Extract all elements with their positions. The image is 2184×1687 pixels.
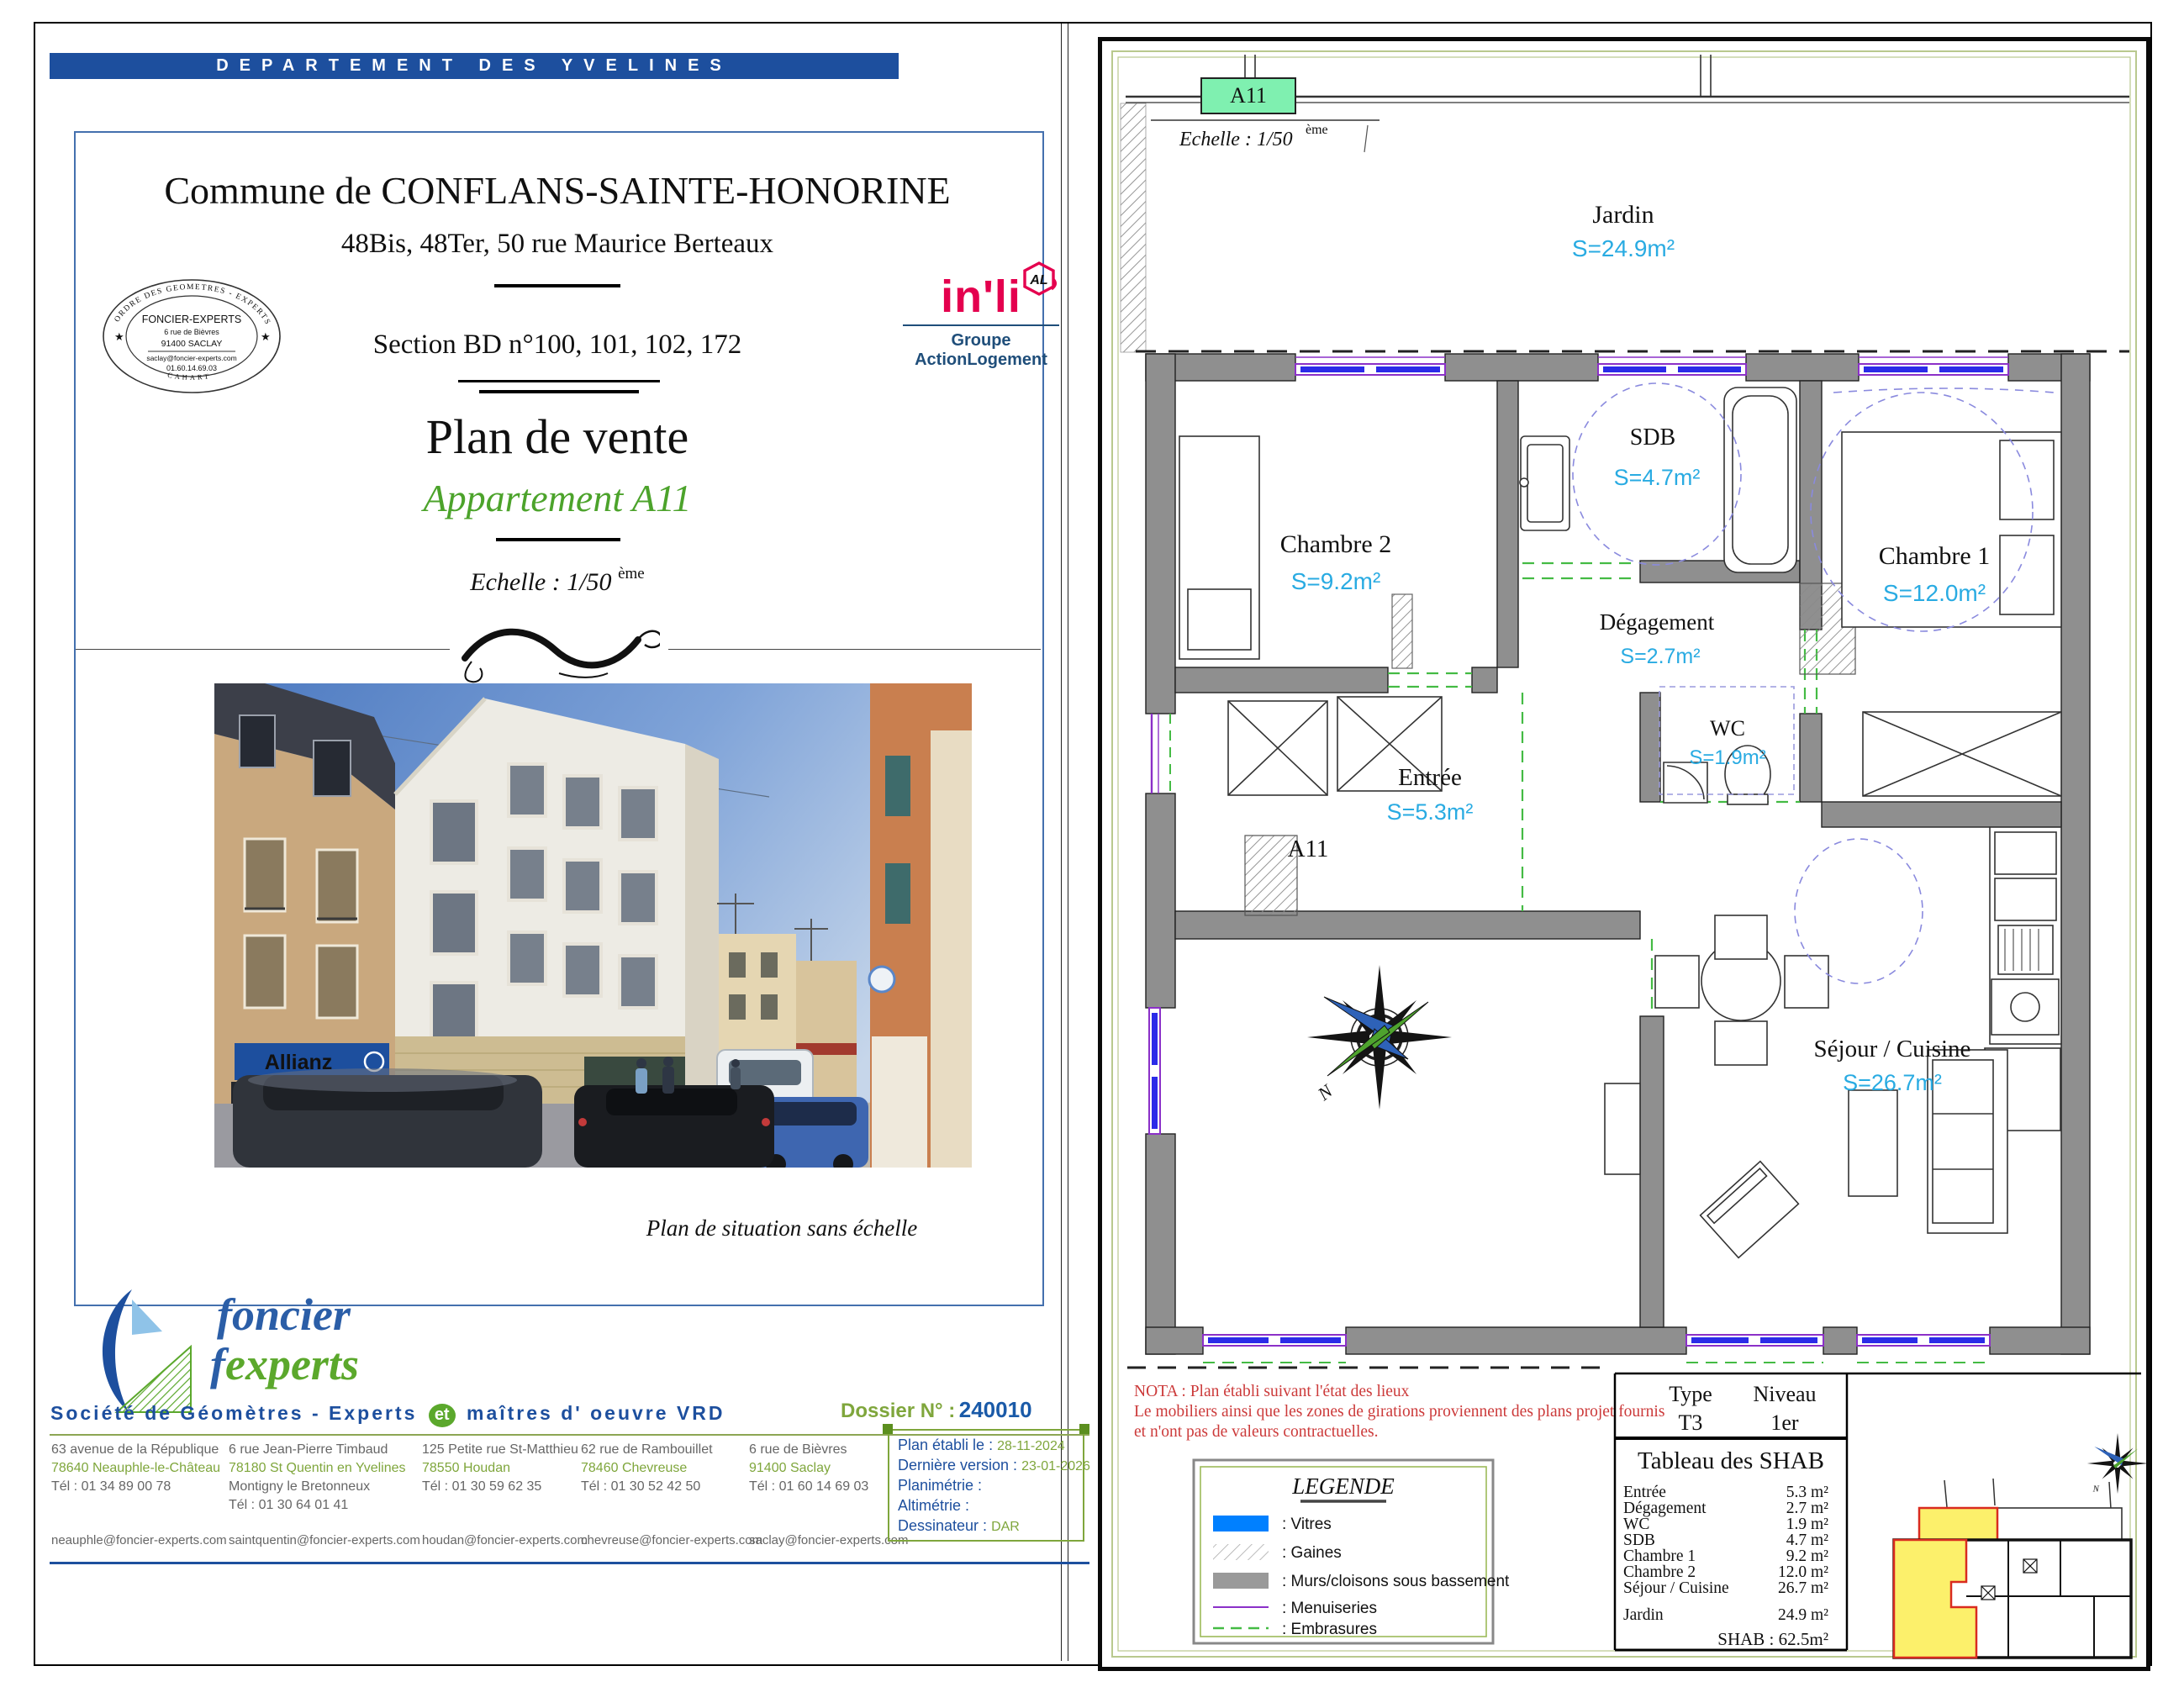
plan-scale-sup: ème	[1306, 123, 1328, 137]
agency-line: 78180 St Quentin en Yvelines	[229, 1459, 418, 1478]
dossier-field-value: 28-11-2024	[997, 1439, 1065, 1453]
legend-swatch-vitres	[1213, 1516, 1269, 1531]
photo-caption: Plan de situation sans échelle	[546, 1215, 1017, 1242]
stamp-addr1: 6 rue de Bièvres	[164, 328, 219, 336]
level-label: Niveau	[1753, 1382, 1816, 1406]
window-bottom-sejour-1	[1686, 1335, 1823, 1363]
experts-text: experts	[225, 1339, 359, 1389]
legend-box: LEGENDE : Vitres : Gaines : Murs/cloison…	[1194, 1460, 1510, 1643]
dossier-field-label: Dernière version :	[898, 1457, 1017, 1473]
room-area-sdb: S=4.7m²	[1614, 465, 1701, 490]
dossier-box: Plan établi le : 28-11-2024 Dernière ver…	[888, 1429, 1084, 1542]
window-top-sdb	[1598, 357, 1746, 375]
stamp-email: saclay@foncier-experts.com	[146, 354, 236, 362]
sdb-sink-basin	[1527, 445, 1563, 522]
key-plan: N	[1894, 1433, 2146, 1658]
shab-room: Chambre 2	[1623, 1563, 1696, 1581]
agency-line: Tél : 01 30 64 01 41	[229, 1496, 418, 1515]
dossier-heading: Dossier N° : 240010	[841, 1397, 1089, 1423]
pillow-chambre2	[1188, 589, 1251, 650]
legend-swatch-murs	[1213, 1573, 1269, 1589]
sdb-faucet	[1520, 478, 1528, 487]
shab-title: Tableau des SHAB	[1638, 1447, 1824, 1474]
inli-al-text: AL	[1029, 273, 1047, 287]
nota-text: NOTA : Plan établi suivant l'état des li…	[1134, 1383, 1664, 1441]
room-area-wc: S=1.9m²	[1689, 746, 1765, 769]
dossier-field-value: DAR	[991, 1520, 1020, 1534]
shab-room: Entrée	[1623, 1484, 1666, 1501]
company-tagline: Société de Géomètres - Experts et maître…	[50, 1402, 904, 1427]
dossier-corner-square	[883, 1424, 893, 1434]
divider-rule-3	[496, 538, 620, 541]
plan-de-vente-page: DEPARTEMENT DES YVELINES Commune de CONF…	[0, 0, 2184, 1687]
shab-area: 5.3 m²	[1786, 1484, 1828, 1501]
shab-area: 4.7 m²	[1786, 1531, 1828, 1549]
window-top-chambre1	[1859, 357, 2008, 375]
department-banner: DEPARTEMENT DES YVELINES	[50, 53, 899, 79]
scale-note: Echelle : 1/50 ème	[74, 565, 1041, 597]
room-label-chambre2: Chambre 2	[1280, 530, 1391, 558]
agency-stquentin: 6 rue Jean-Pierre Timbaud 78180 St Quent…	[229, 1441, 418, 1515]
dossier-field-label: Altimétrie :	[898, 1497, 969, 1514]
inli-group-label: Groupe ActionLogement	[893, 331, 1069, 370]
street-address: 48Bis, 48Ter, 50 rue Maurice Berteaux	[74, 229, 1041, 260]
shab-area: 12.0 m²	[1778, 1563, 1828, 1581]
shab-total: SHAB : 62.5m²	[1717, 1629, 1828, 1649]
agency-line: Tél : 01 30 52 42 50	[581, 1478, 770, 1496]
legend-label-vitres: : Vitres	[1282, 1516, 1332, 1533]
inli-brand: in'li	[941, 272, 1021, 322]
legend-title: LEGENDE	[1291, 1473, 1395, 1499]
kitchen-sink	[1998, 925, 2053, 974]
legend-label-gaines: : Gaines	[1282, 1544, 1342, 1562]
shab-room: Chambre 1	[1623, 1547, 1696, 1565]
surveyor-stamp: ORDRE DES GEOMETRES - EXPERTS CAHART ★ ★…	[99, 276, 284, 397]
dossier-field-label: Planimétrie :	[898, 1477, 982, 1494]
dossier-field-value: 23-01-2026	[1021, 1459, 1090, 1473]
dossier-field-label: Plan établi le :	[898, 1437, 993, 1453]
dossier-field-label: Dessinateur :	[898, 1517, 987, 1534]
nota-line-2: Le mobiliers ainsi que les zones de gira…	[1134, 1403, 1664, 1421]
inli-al-hexagon-icon: AL	[1020, 261, 1058, 299]
stamp-star-right: ★	[261, 330, 271, 343]
floor-plan-drawing: A11 Echelle : 1/50 ème Jardin S=24.9m²	[1102, 41, 2146, 1667]
room-label-entree: Entrée	[1398, 764, 1462, 791]
level-value: 1er	[1770, 1410, 1799, 1435]
agency-email: chevreuse@foncier-experts.com	[581, 1533, 762, 1547]
scale-sup: ème	[618, 565, 645, 583]
entrance-door-left	[1152, 714, 1170, 793]
scale-label: Echelle : 1/50	[470, 568, 611, 596]
room-area-chambre1: S=12.0m²	[1883, 580, 1986, 606]
window-left-wall	[1149, 1008, 1160, 1134]
room-label-sdb: SDB	[1630, 424, 1675, 451]
plan-title: Plan de vente	[74, 409, 1041, 465]
room-label-sejour: Séjour / Cuisine	[1814, 1036, 1971, 1062]
agency-chevreuse: 62 rue de Rambouillet 78460 Chevreuse Té…	[581, 1441, 770, 1515]
agency-email: saclay@foncier-experts.com	[749, 1533, 908, 1547]
agency-neauphle: 63 avenue de la République 78640 Neauphl…	[51, 1441, 240, 1515]
room-label-chambre1: Chambre 1	[1879, 542, 1990, 570]
ornament-line-left	[76, 649, 450, 650]
experts-wordmark: fexperts	[210, 1338, 359, 1390]
commune-title: Commune de CONFLANS-SAINTE-HONORINE	[74, 168, 1041, 213]
dossier-label: Dossier N° :	[841, 1400, 955, 1422]
agency-line: Tél : 01 34 89 00 78	[51, 1478, 240, 1496]
room-area-sejour: S=26.7m²	[1843, 1070, 1942, 1095]
window-bottom-left	[1203, 1335, 1346, 1363]
stamp-addr2: 91400 SACLAY	[161, 339, 223, 349]
room-area-degagement: S=2.7m²	[1620, 645, 1700, 668]
shab-area: 24.9 m²	[1778, 1606, 1828, 1624]
key-plan-compass-icon: N	[2087, 1433, 2146, 1495]
dossier-corner-square	[1079, 1424, 1089, 1434]
shab-area: 9.2 m²	[1786, 1547, 1828, 1565]
apartment-title: Appartement A11	[74, 476, 1041, 520]
agency-line: 78460 Chevreuse	[581, 1459, 770, 1478]
room-label-degagement: Dégagement	[1600, 609, 1715, 635]
inli-divider	[903, 324, 1059, 326]
divider-rule-1	[494, 284, 620, 287]
nightstand-1	[2000, 440, 2054, 519]
window-top-chambre2	[1295, 357, 1445, 375]
ornament-line-right	[668, 649, 1041, 650]
foncier-experts-logo-icon	[80, 1288, 210, 1415]
agency-email: neauphle@foncier-experts.com	[51, 1533, 227, 1547]
stamp-star-left: ★	[114, 330, 124, 343]
shab-area: 1.9 m²	[1786, 1516, 1828, 1533]
experts-f: f	[210, 1339, 225, 1389]
type-value: T3	[1679, 1410, 1703, 1435]
shab-room: WC	[1623, 1516, 1649, 1533]
shab-room: Dégagement	[1623, 1500, 1707, 1517]
stamp-name: FONCIER-EXPERTS	[142, 314, 242, 325]
dossier-number: 240010	[959, 1397, 1032, 1422]
plan-scale-label: Echelle : 1/50	[1179, 129, 1293, 150]
window-bottom-sejour-2	[1857, 1335, 1990, 1363]
room-area-chambre2: S=9.2m²	[1291, 568, 1381, 594]
swirl-ornament	[458, 618, 660, 685]
nota-line-3: et n'ont pas de valeurs contractuelles.	[1134, 1423, 1379, 1441]
agency-line: Montigny le Bretonneux	[229, 1478, 418, 1496]
compass-rose-icon: N	[1307, 965, 1452, 1110]
door-leaf-chambre2	[1392, 594, 1412, 668]
agency-line: 6 rue Jean-Pierre Timbaud	[229, 1441, 418, 1459]
floor-plan-panel: A11 Echelle : 1/50 ème Jardin S=24.9m²	[1098, 37, 2150, 1671]
coffee-table	[1849, 1090, 1897, 1196]
agency-line: 63 avenue de la République	[51, 1441, 240, 1459]
unit-badge-label: A11	[1230, 83, 1267, 108]
room-area-entree: S=5.3m²	[1387, 799, 1474, 825]
foncier-wordmark: foncier	[217, 1289, 351, 1341]
tagline-right: maîtres d' oeuvre VRD	[467, 1402, 725, 1424]
nota-line-1: NOTA : Plan établi suivant l'état des li…	[1134, 1383, 1410, 1400]
unit-label-on-plan: A11	[1288, 836, 1329, 862]
agency-line: 62 rue de Rambouillet	[581, 1441, 770, 1459]
desk-adjacent-unit	[1605, 1083, 1640, 1174]
tv-stand	[1701, 1162, 1799, 1258]
tagline-left: Société de Géomètres - Experts	[50, 1402, 417, 1424]
shab-room: Séjour / Cuisine	[1623, 1579, 1729, 1597]
type-label: Type	[1669, 1382, 1712, 1406]
room-label-wc: WC	[1710, 716, 1745, 741]
inli-logo: in'li AL Groupe ActionLogement	[893, 271, 1069, 370]
legend-label-embrasures: : Embrasures	[1282, 1621, 1377, 1638]
divider-rule-2a	[458, 380, 660, 382]
compass-north-label: N	[1313, 1079, 1337, 1104]
tagline-et-badge: et	[429, 1404, 456, 1427]
dining-set	[1655, 915, 1828, 1065]
room-label-jardin: Jardin	[1592, 201, 1654, 229]
key-plan-north: N	[2092, 1484, 2100, 1495]
agency-email: houdan@foncier-experts.com	[422, 1533, 588, 1547]
situation-photo: Allianz	[214, 683, 972, 1168]
nightstand-2	[2000, 535, 2054, 614]
agency-line: 78640 Neauphle-le-Château	[51, 1459, 240, 1478]
shab-room: SDB	[1623, 1531, 1655, 1549]
agency-line	[581, 1496, 770, 1515]
legend-swatch-gaines	[1213, 1544, 1269, 1560]
shab-area: 2.7 m²	[1786, 1500, 1828, 1517]
shab-area: 26.7 m²	[1778, 1579, 1828, 1597]
room-area-jardin: S=24.9m²	[1572, 235, 1675, 261]
shab-rows: Entrée 5.3 m² Dégagement 2.7 m² WC 1.9 m…	[1623, 1484, 1828, 1624]
kitchen-stove	[1991, 979, 2059, 1035]
agency-line	[51, 1496, 240, 1515]
legend-label-murs: : Murs/cloisons sous bassement	[1282, 1573, 1510, 1590]
stamp-phone: 01.60.14.69.03	[166, 364, 217, 372]
closet-chambre1	[1863, 712, 2061, 796]
legend-label-menuiseries: : Menuiseries	[1282, 1600, 1377, 1617]
agency-email: saintquentin@foncier-experts.com	[229, 1533, 420, 1547]
shab-room: Jardin	[1623, 1606, 1664, 1624]
divider-rule-2b	[479, 390, 639, 393]
